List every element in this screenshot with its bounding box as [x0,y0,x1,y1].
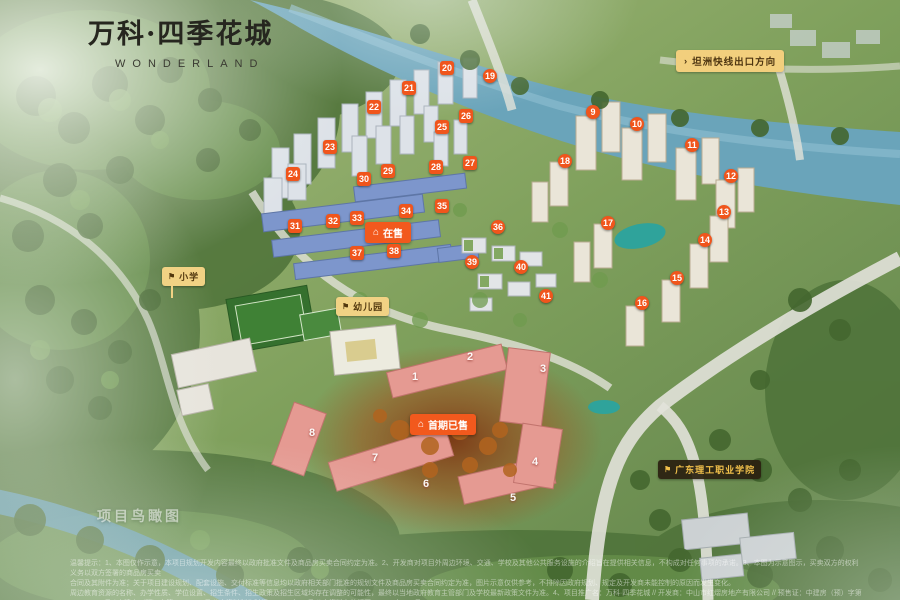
flag-icon: ⚑ [342,303,350,311]
building-marker-40[interactable]: 40 [514,260,528,274]
building-marker-29[interactable]: 29 [381,164,395,178]
building-marker-41[interactable]: 41 [539,289,553,303]
watermark-caption: 项目鸟瞰图 [97,506,182,526]
flag-icon: ⚑ [168,273,176,281]
building-marker-25[interactable]: 25 [435,120,449,134]
building-marker-35[interactable]: 35 [435,199,449,213]
poi-label-primary-school[interactable]: ⚑小学 [162,267,205,286]
phase1-building-number-8: 8 [309,427,315,439]
building-marker-24[interactable]: 24 [286,167,300,181]
poi-label-text: 小学 [179,270,199,283]
annotation-layer: 万科·四季花城 WONDERLAND › 坦洲快线出口方向 ⌂ 在售 ⌂ 首期已… [0,0,900,600]
building-marker-14[interactable]: 14 [698,233,712,247]
house-icon: ⌂ [418,420,424,430]
building-marker-17[interactable]: 17 [601,216,615,230]
disclaimer-line: 温馨提示：1、本图仅作示意，本项目规划开发内容最终以政府批准文件及商品房买卖合同… [70,559,862,579]
building-marker-23[interactable]: 23 [323,140,337,154]
disclaimer-line: 合同及其附件为准；关于项目建设规划、配套设施、交付标准等信息均以政府相关部门批准… [70,579,862,589]
building-marker-15[interactable]: 15 [670,271,684,285]
building-marker-30[interactable]: 30 [357,172,371,186]
building-marker-31[interactable]: 31 [288,219,302,233]
phase1-building-number-3: 3 [540,363,546,375]
on-sale-label-text: 在售 [383,225,403,240]
phase1-building-number-7: 7 [372,452,378,464]
disclaimer: 温馨提示：1、本图仅作示意，本项目规划开发内容最终以政府批准文件及商品房买卖合同… [70,559,862,600]
project-logo-title: 万科·四季花城 [88,12,273,51]
building-marker-9[interactable]: 9 [586,105,600,119]
building-marker-21[interactable]: 21 [402,81,416,95]
phase1-sold-label[interactable]: ⌂ 首期已售 [410,414,476,435]
label-stem [171,286,173,298]
building-marker-19[interactable]: 19 [483,69,497,83]
phase1-building-number-6: 6 [423,478,429,490]
building-marker-37[interactable]: 37 [350,246,364,260]
building-marker-26[interactable]: 26 [459,109,473,123]
phase1-building-number-1: 1 [412,371,418,383]
building-marker-13[interactable]: 13 [717,205,731,219]
building-marker-32[interactable]: 32 [326,214,340,228]
building-marker-28[interactable]: 28 [429,160,443,174]
building-marker-39[interactable]: 39 [465,255,479,269]
building-marker-22[interactable]: 22 [367,100,381,114]
poi-label-college[interactable]: ⚑广东理工职业学院 [658,460,761,479]
house-icon: ⌂ [373,228,379,238]
disclaimer-line: 周边教育资源的名称、办学性质、学位设置、招生条件、招生政策及招生区域均存在调整的… [70,589,862,599]
phase1-sold-label-text: 首期已售 [428,417,468,432]
building-marker-38[interactable]: 38 [387,244,401,258]
flag-icon: ⚑ [664,466,672,474]
project-logo-subtitle: WONDERLAND [115,58,273,70]
building-marker-10[interactable]: 10 [630,117,644,131]
building-marker-11[interactable]: 11 [685,138,699,152]
building-marker-33[interactable]: 33 [350,211,364,225]
building-marker-12[interactable]: 12 [724,169,738,183]
phase1-building-number-2: 2 [467,351,473,363]
building-marker-20[interactable]: 20 [440,61,454,75]
expressway-sign-text: 坦洲快线出口方向 [692,54,776,68]
building-marker-18[interactable]: 18 [558,154,572,168]
building-marker-16[interactable]: 16 [635,296,649,310]
building-marker-34[interactable]: 34 [399,204,413,218]
arrow-icon: › [684,56,688,67]
building-marker-27[interactable]: 27 [463,156,477,170]
phase1-building-number-5: 5 [510,492,516,504]
poi-label-text: 幼儿园 [353,300,383,313]
project-logo: 万科·四季花城 WONDERLAND [88,12,273,70]
phase1-building-number-4: 4 [532,456,538,468]
building-marker-36[interactable]: 36 [491,220,505,234]
birdseye-map[interactable]: 万科·四季花城 WONDERLAND › 坦洲快线出口方向 ⌂ 在售 ⌂ 首期已… [0,0,900,600]
on-sale-label[interactable]: ⌂ 在售 [365,222,411,243]
poi-label-text: 广东理工职业学院 [675,463,755,476]
poi-label-kindergarten[interactable]: ⚑幼儿园 [336,297,389,316]
expressway-sign[interactable]: › 坦洲快线出口方向 [676,50,784,72]
